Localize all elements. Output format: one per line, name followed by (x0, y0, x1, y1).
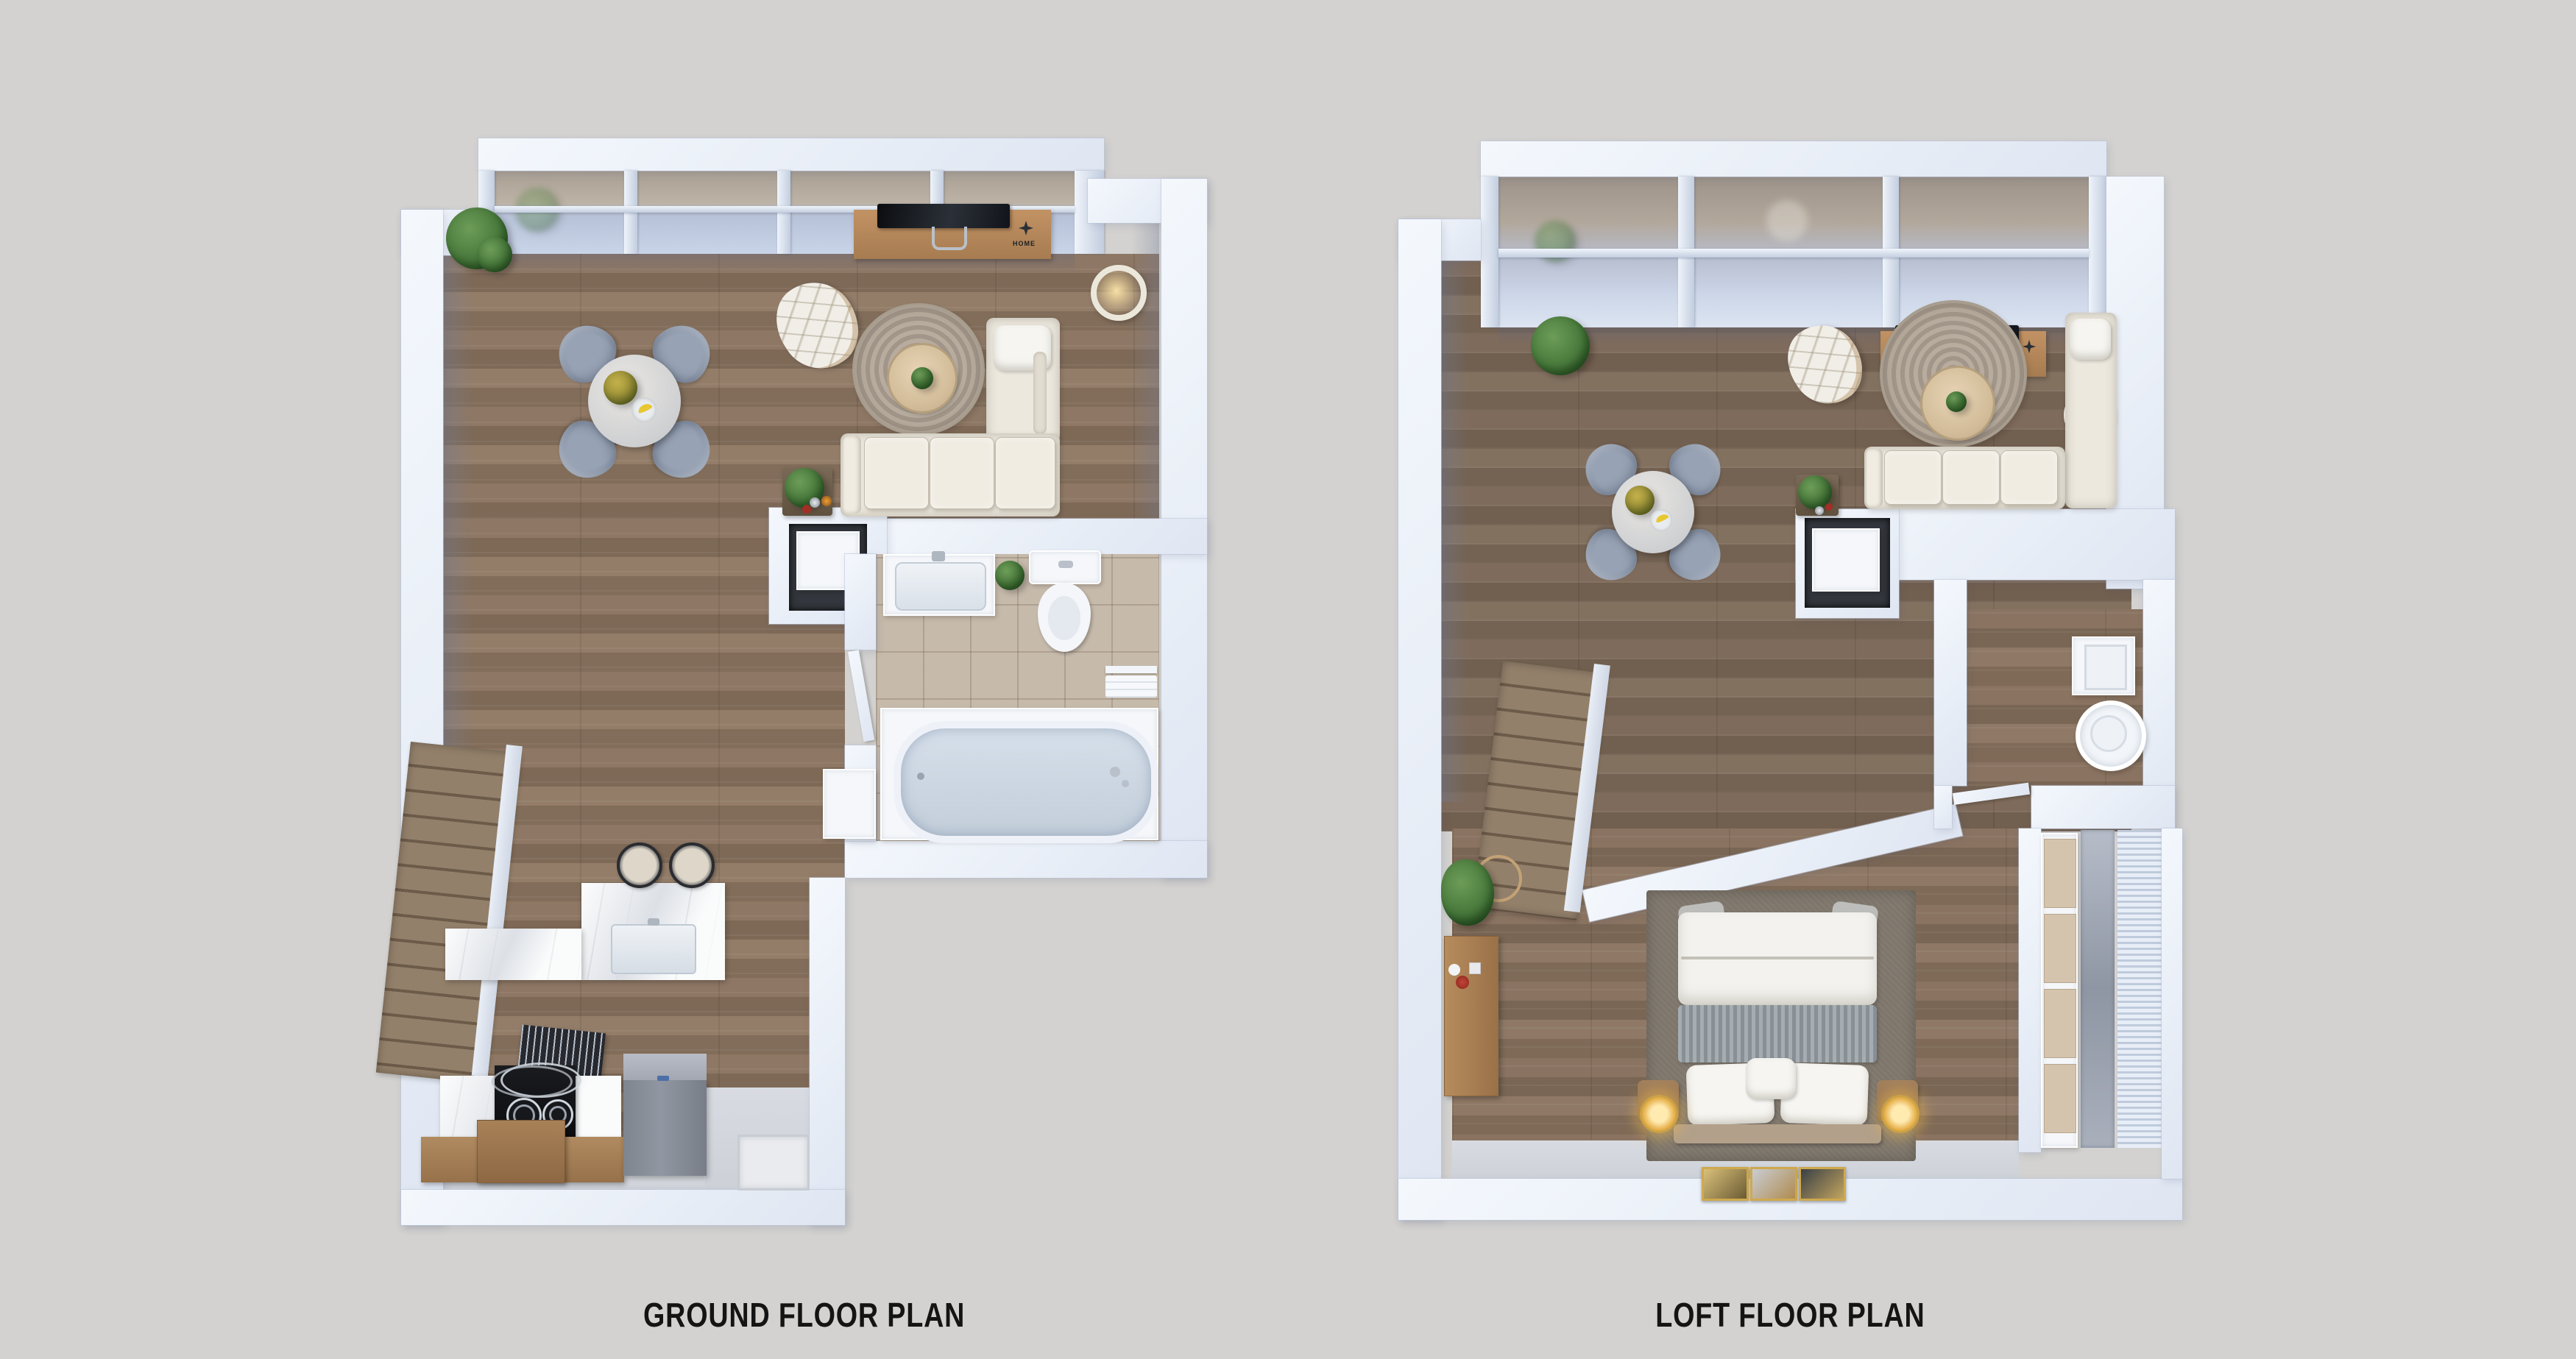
island-sink (611, 924, 696, 974)
sofa-cushion (864, 437, 929, 509)
closet-drawer (2044, 989, 2076, 1058)
sink-faucet (932, 551, 945, 561)
console-sign: HOME (1013, 240, 1036, 247)
left-wall-shadow (442, 254, 473, 828)
loft-sofa-cushion (2000, 450, 2058, 505)
loft-plan-label-area: LOFT FLOOR PLAN (1398, 1298, 2182, 1332)
closet-drawer (2044, 839, 2076, 908)
island-faucet (648, 918, 659, 926)
toilet-button (1058, 561, 1073, 568)
bedroom-plant (1441, 859, 1494, 926)
closet-drawer (2044, 914, 2076, 983)
refrigerator-label (657, 1076, 669, 1081)
towel (1105, 675, 1157, 698)
loft-sofa-armrest (1866, 449, 1883, 507)
loft-decor-chrome (1815, 506, 1824, 515)
utility-wall-left (1934, 580, 1967, 786)
bedside-lamp (1640, 1095, 1678, 1133)
sofa-cushion (930, 437, 994, 509)
table-plant (604, 371, 637, 405)
wall-bathroom-bottom (845, 841, 1207, 878)
bathroom-sink-basin (895, 562, 986, 611)
cabinet-decor-cube (1469, 962, 1481, 974)
ground-plan-title: GROUND FLOOR PLAN (643, 1298, 965, 1332)
bed-duvet-fold (1681, 957, 1874, 959)
skylight-transom (1498, 249, 2089, 258)
skylight-mullion (1481, 177, 1498, 327)
bedside-lamp (1881, 1095, 1919, 1133)
refrigerator (623, 1080, 707, 1176)
bathroom-left-wall-upper (845, 554, 876, 650)
decor-red (802, 505, 811, 514)
bed-headboard (1674, 1124, 1881, 1143)
bar-stool (669, 842, 715, 888)
cabinet-decor-red-bowl (1456, 976, 1469, 989)
water-boiler-lid (2090, 715, 2127, 752)
skylight-chair-below (1766, 200, 1808, 241)
loft-decor-red (1825, 503, 1833, 511)
ground-plan-label-area: GROUND FLOOR PLAN (401, 1298, 1207, 1332)
closet-wall-right (2162, 828, 2182, 1179)
kitchen-cabinet-box (477, 1120, 565, 1183)
entry-mat (737, 1135, 810, 1191)
chaise-armrest-line (1033, 352, 1047, 434)
loft-corner-plant (1531, 316, 1590, 375)
closet-slatted-panel (2117, 830, 2162, 1148)
skylight-mullion (2089, 177, 2106, 327)
bathroom-cabinet (823, 769, 876, 839)
loft-plan-title: LOFT FLOOR PLAN (1655, 1298, 1925, 1332)
loft-sofa-cushion (1884, 450, 1942, 505)
wall-bottom (401, 1190, 845, 1225)
bar-stool (617, 842, 662, 888)
loft-fireplace-insert (1812, 528, 1880, 592)
coffee-table-plant (911, 367, 933, 389)
framed-artwork (1750, 1167, 1797, 1201)
skylight-frame-top (1481, 141, 2106, 177)
corner-plant-leaves (477, 237, 512, 272)
television (877, 204, 1010, 228)
sofa-cushion (995, 437, 1055, 509)
tub-handle (1122, 780, 1129, 787)
washing-machine-door (2084, 645, 2127, 690)
bed-cushion-small (1746, 1058, 1796, 1099)
tub-faucet (1110, 767, 1120, 777)
loft-table-plant (1625, 486, 1655, 515)
right-wall-shadow (1131, 223, 1159, 517)
closet-glass-panel (2081, 830, 2115, 1148)
utility-wall-bottom-a (1934, 786, 1952, 828)
sofa-armrest (843, 436, 861, 514)
towel-rail (1105, 666, 1157, 673)
cabinet-decor-white (1448, 964, 1460, 976)
bathroom-plant (995, 561, 1025, 590)
loft-wall-left (1398, 219, 1441, 1220)
utility-wall-bottom-b (2031, 786, 2175, 828)
bedside-cabinet (1444, 936, 1498, 1096)
loft-coffee-table-plant (1946, 391, 1967, 412)
floor-plan-sheet: HOME (0, 0, 2576, 1359)
loft-sofa-cushion (1942, 450, 2000, 505)
decor-amber (821, 496, 832, 506)
closet-divider (2019, 828, 2041, 1152)
loft-chaise-pillow (2070, 319, 2111, 360)
bathtub (894, 721, 1158, 843)
toilet-seat (1048, 596, 1080, 640)
decor-chrome (810, 497, 820, 508)
wall-lower-right (810, 878, 845, 1225)
framed-artwork (1799, 1167, 1846, 1201)
island-counter-left (445, 929, 581, 980)
tub-drain (917, 773, 924, 780)
closet-drawer (2044, 1064, 2076, 1133)
framed-artwork (1702, 1167, 1749, 1201)
window-frame-top (478, 138, 1104, 171)
bed-blanket (1678, 1005, 1877, 1062)
loft-left-wall-shadow (1440, 258, 1469, 802)
wall-bathroom-top (845, 519, 1207, 554)
tv-stand (932, 227, 967, 250)
bathroom-door (848, 650, 874, 742)
floor-lamp (1091, 265, 1147, 321)
cooktop-rail (492, 1065, 573, 1098)
